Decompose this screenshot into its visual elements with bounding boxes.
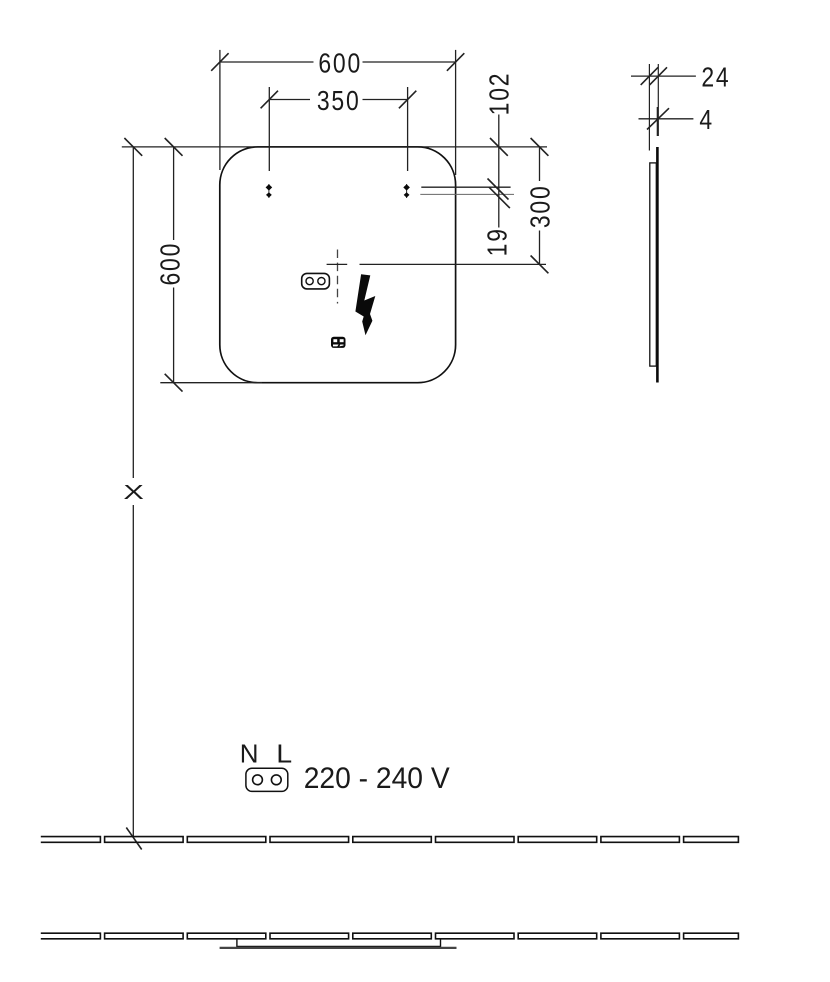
svg-text:102: 102 — [484, 72, 515, 116]
svg-text:24: 24 — [701, 62, 730, 93]
svg-text:600: 600 — [318, 48, 362, 79]
svg-text:350: 350 — [317, 86, 361, 117]
svg-text:220 - 240 V: 220 - 240 V — [304, 762, 450, 795]
svg-text:300: 300 — [525, 184, 556, 228]
svg-text:19: 19 — [483, 227, 514, 256]
svg-text:600: 600 — [155, 242, 186, 286]
svg-text:X: X — [123, 481, 144, 504]
svg-text:4: 4 — [699, 105, 712, 136]
svg-text:N: N — [240, 739, 259, 769]
svg-text:L: L — [276, 739, 292, 769]
